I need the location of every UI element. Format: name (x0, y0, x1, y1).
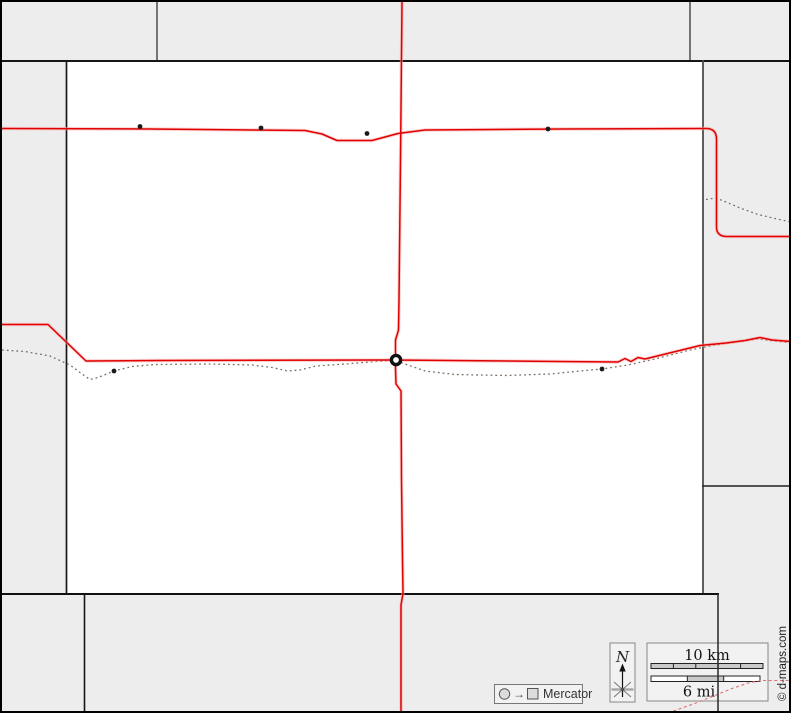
scale-km-bar (651, 664, 763, 669)
copyright-label: © d-maps.com (777, 626, 789, 701)
scale-bar-legend: 10 km 6 mi (647, 643, 768, 701)
scale-km-label: 10 km (684, 648, 730, 664)
county-area (66, 61, 703, 594)
town-dot (138, 124, 143, 129)
town-dot (259, 126, 264, 131)
scale-mi-label: 6 mi (683, 685, 716, 701)
town-dot (365, 131, 370, 136)
compass-star-center (621, 688, 625, 692)
projection-arrow-icon: → (513, 687, 525, 701)
projection-square-icon (528, 689, 539, 700)
north-label: N (615, 648, 630, 666)
county-seat-ring (391, 355, 400, 364)
projection-legend: → Mercator (495, 685, 593, 704)
town-dot (600, 367, 605, 372)
projection-circle-icon (499, 689, 509, 699)
map-canvas: → Mercator N 10 km 6 mi © d-maps.com (0, 0, 791, 713)
town-dot (546, 127, 551, 132)
projection-label: Mercator (543, 687, 592, 701)
town-dot (112, 369, 117, 374)
north-arrow-legend: N (610, 643, 635, 702)
